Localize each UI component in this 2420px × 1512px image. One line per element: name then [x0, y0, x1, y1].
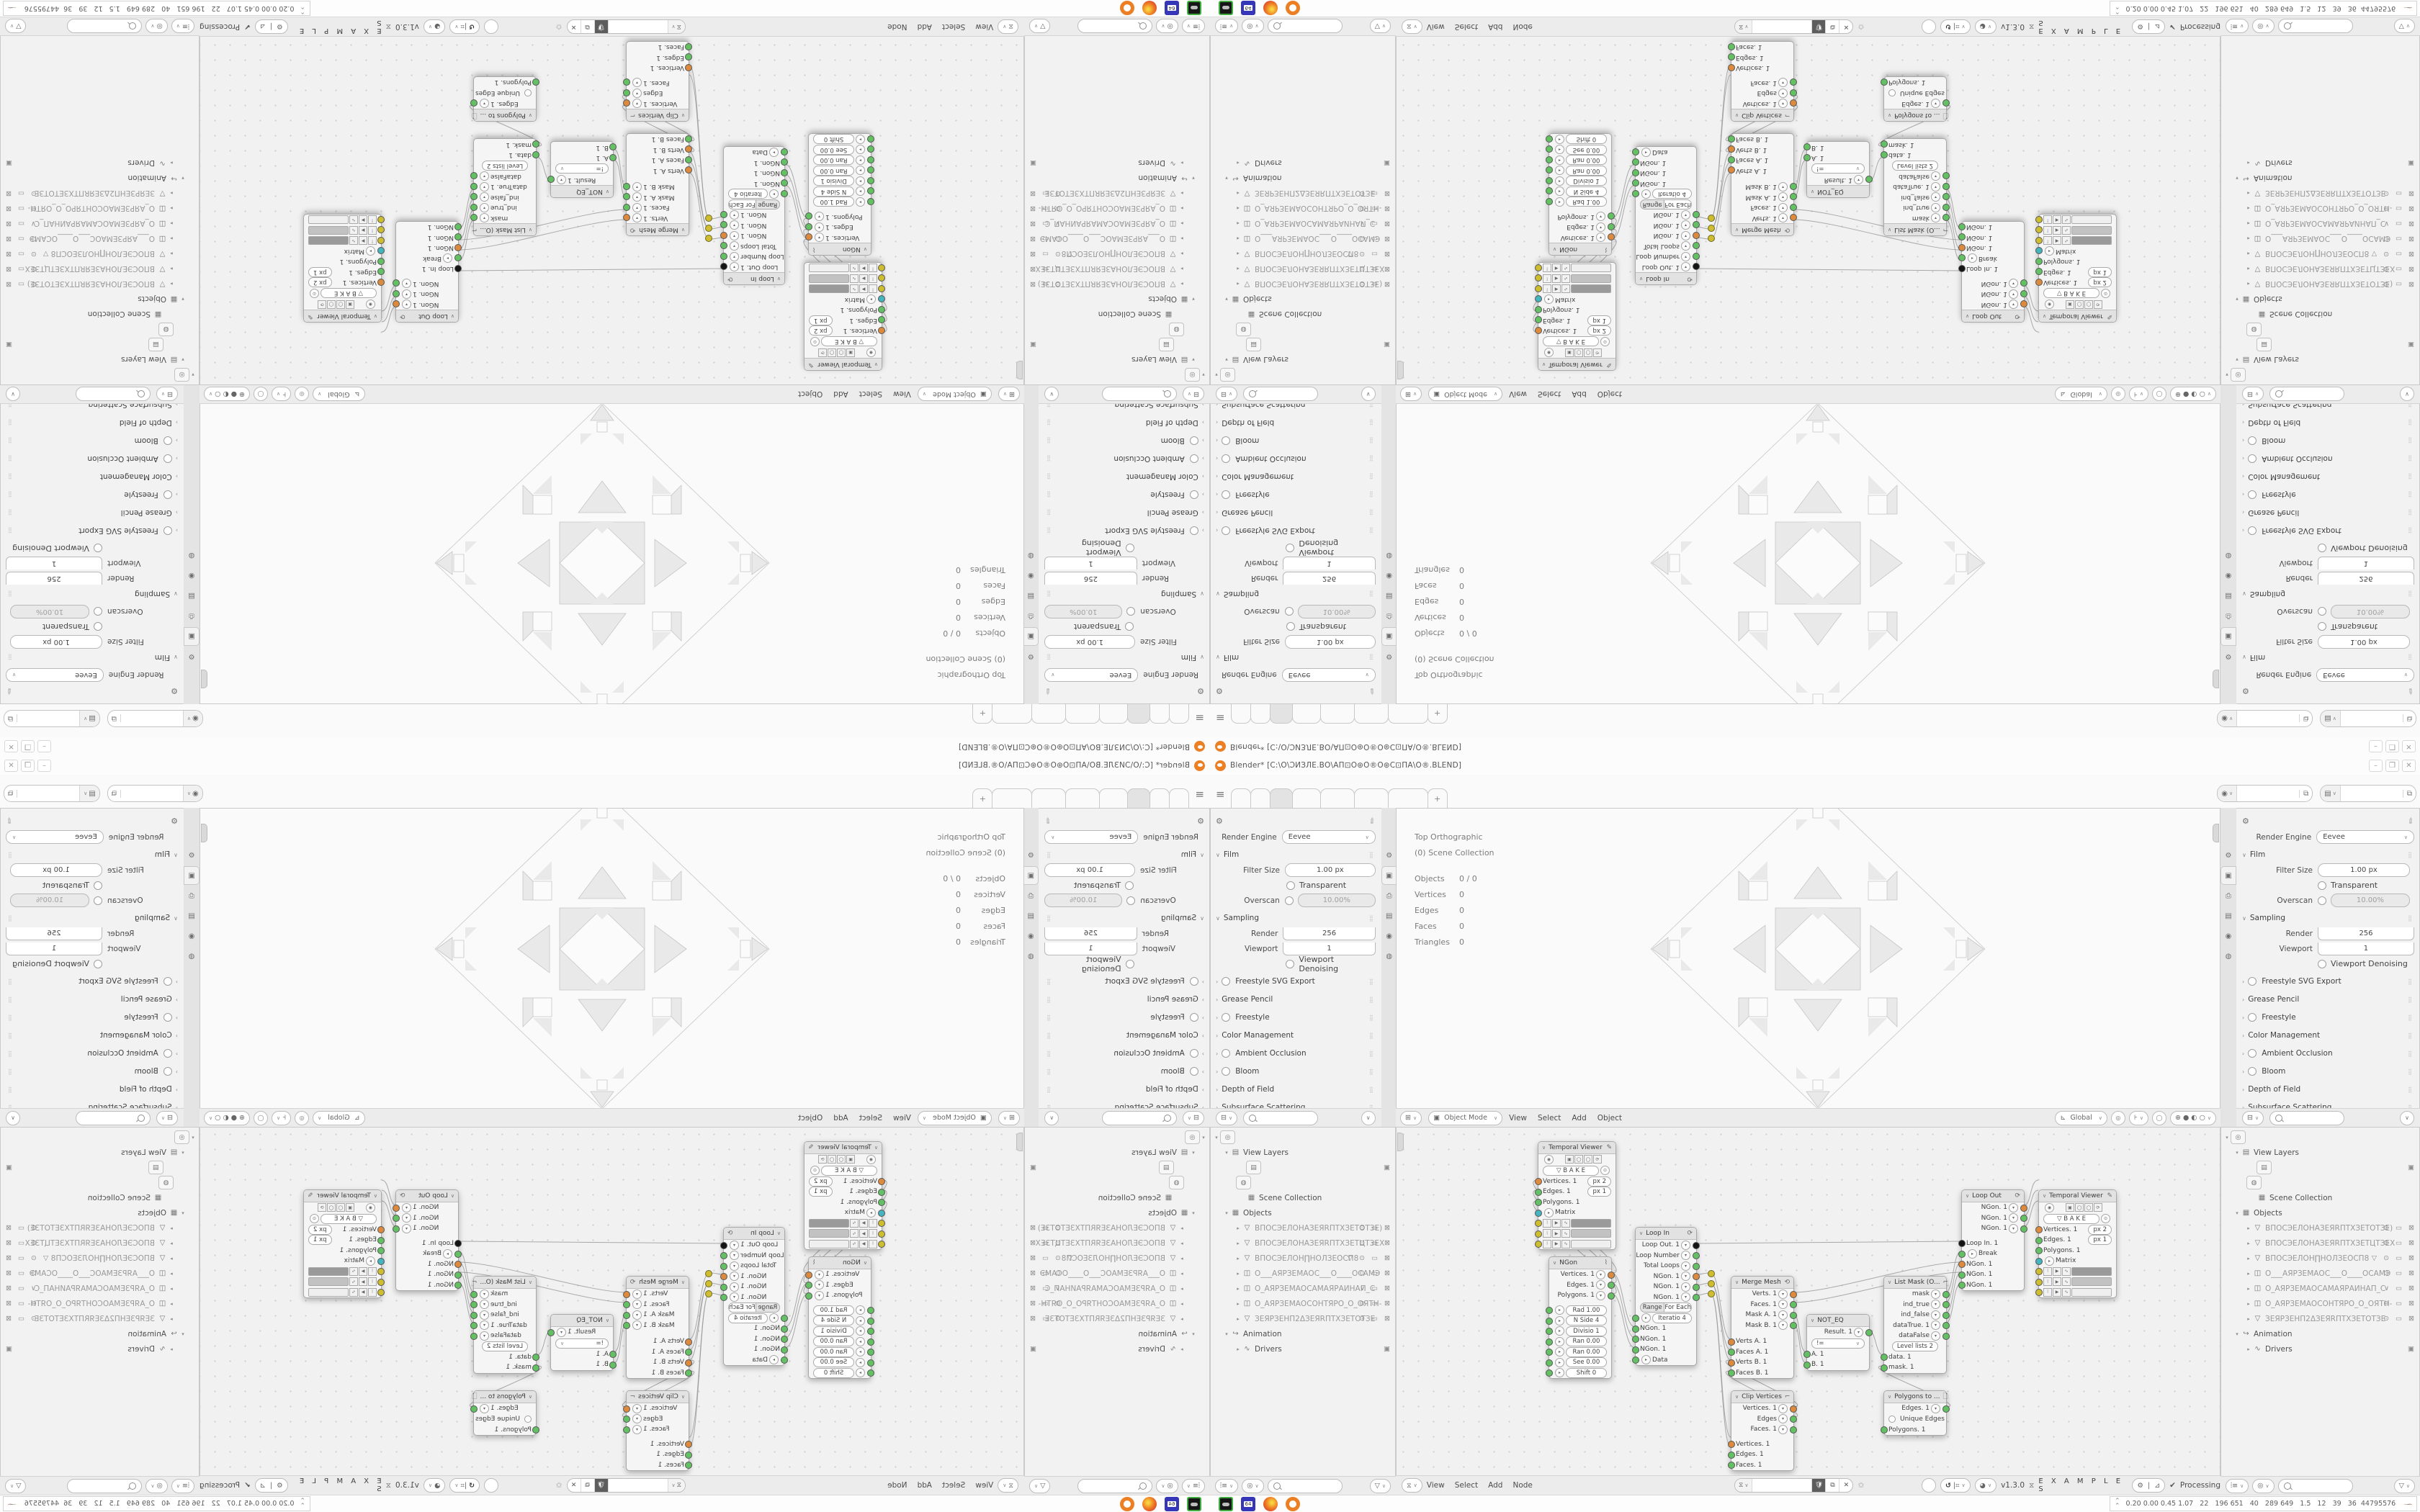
fake-user-shield-button[interactable]: 🛡 [1811, 1479, 1825, 1492]
socket-green[interactable] [1608, 1292, 1615, 1300]
socket-green[interactable] [781, 148, 788, 156]
editor-type-button[interactable]: ⊞ ∨ [998, 1111, 1020, 1125]
socket-yellow[interactable] [2035, 226, 2043, 233]
filter-size-field[interactable]: 1.00 px [1285, 635, 1376, 649]
world-icon[interactable]: ◍ [2221, 948, 2236, 965]
properties-filter-button[interactable]: ⊟ ∨ [2242, 387, 2264, 402]
socket-green[interactable] [1632, 179, 1639, 186]
socket-orange[interactable] [685, 1338, 692, 1346]
outliner-row-ВПОСЭЕЛОНАЗЕ[interactable]: ▸▽ВПОСЭЕЛОНАЗЕЯRПТХЗЕТЦТЗЕХ⊙▭⊠ [1210, 1236, 1396, 1251]
socket-orange[interactable] [623, 214, 630, 221]
socket-green[interactable] [1693, 1252, 1700, 1259]
display-mode-button[interactable]: ⦙≡ ∨ [1182, 19, 1205, 34]
socket-green[interactable] [805, 223, 812, 230]
render-toggle-icon[interactable]: ⊠ [1030, 220, 1036, 228]
outliner-search[interactable] [67, 19, 142, 34]
properties-search[interactable] [76, 387, 151, 402]
render-toggle-icon[interactable]: ⊠ [1384, 1284, 1390, 1292]
render-toggle-icon[interactable]: ⊠ [1030, 1284, 1036, 1292]
viewlayer-icon[interactable]: ▤ [1023, 588, 1038, 605]
workspace-tab-4[interactable] [1099, 704, 1128, 724]
outliner-row[interactable]: ▤▣ [0, 1160, 200, 1175]
samples-render-field[interactable]: 256 [6, 572, 102, 585]
scene-icon[interactable]: ◉ [1382, 567, 1397, 585]
render-toggle-icon[interactable]: ⊠ [1384, 250, 1390, 258]
render-toggle-icon[interactable]: ⊠ [2408, 1300, 2414, 1308]
close-button[interactable]: ✕ [4, 741, 18, 753]
socket-green[interactable] [1865, 1329, 1873, 1336]
monitor-icon[interactable]: ▭ [18, 220, 24, 228]
monitor-icon[interactable]: ▭ [1371, 220, 1378, 228]
render-toggle-icon[interactable]: ⊠ [1384, 1239, 1390, 1247]
node-loop-in[interactable]: ∨Loop In⟳Loop Out. 1▾Loop Number▾Total L… [723, 146, 785, 285]
editor-type-button[interactable]: ⊞ ∨ [1400, 1111, 1422, 1125]
viewport-menu-view[interactable]: View [1509, 1114, 1527, 1122]
viewlayer-icon[interactable]: ▤ [1023, 907, 1038, 924]
section-color-management[interactable]: ›Color Management⣿ [1044, 469, 1204, 485]
pin-icon[interactable]: ✐ [4, 815, 14, 827]
node-menu-select[interactable]: Select [1455, 22, 1478, 31]
blank-circle-button[interactable] [1922, 19, 1936, 34]
filter-funnel-button[interactable]: ▽ ∨ [5, 1479, 26, 1493]
section-grease-pencil[interactable]: ›Grease Pencil⣿ [1216, 991, 1376, 1007]
toolbar-toggle[interactable] [1016, 361, 1023, 379]
node-loop-out[interactable]: ∨Loop Out⟳NGon. 1▾NGon. 1▾NGon. 1▾Loop I… [395, 1189, 459, 1291]
socket-orange[interactable] [1790, 1405, 1797, 1413]
socket-green[interactable] [470, 193, 478, 200]
datablock-name-input[interactable] [2237, 786, 2299, 801]
reroute-node[interactable] [705, 1270, 712, 1277]
camera-icon[interactable]: ▣ [1030, 1164, 1036, 1171]
socket-green[interactable] [1546, 1359, 1553, 1367]
section-freestyle-svg-export[interactable]: ›Freestyle SVG Export⣿ [6, 973, 178, 989]
socket-green[interactable] [878, 1189, 885, 1196]
eye-icon[interactable]: ⊙ [1359, 1315, 1365, 1323]
outliner-row-View Layers[interactable]: ▾▤View Layers [1210, 352, 1396, 367]
section-freestyle-svg-export[interactable]: ›Freestyle SVG Export⣿ [1216, 973, 1376, 989]
socket-green[interactable] [377, 268, 385, 275]
outliner-row-Objects[interactable]: ▾▦Objects [0, 1205, 200, 1220]
socket-green[interactable] [781, 1346, 788, 1354]
viewlayer-chip-icon[interactable]: ▤ [2257, 1161, 2272, 1174]
section-ambient-occlusion[interactable]: ›Ambient Occlusion⣿ [6, 1045, 178, 1061]
overscan-field[interactable]: 10.00% [10, 894, 89, 907]
section-freestyle[interactable]: ›Freestyle⣿ [6, 1009, 178, 1025]
socket-orange[interactable] [878, 1178, 885, 1185]
reroute-node[interactable] [705, 225, 712, 232]
sidebar-toggle[interactable] [2213, 670, 2219, 688]
section-freestyle[interactable]: ›Freestyle⣿ [1044, 487, 1204, 503]
section-depth-of-field[interactable]: ›Depth of Field⣿ [1216, 1081, 1376, 1097]
node-tree-selector[interactable]: ⧖ ∨ 🛡 ⧉ ✕ [1734, 19, 1853, 34]
section-sampling[interactable]: ∨Sampling⣿ [1216, 586, 1376, 602]
monitor-icon[interactable]: ▭ [1042, 280, 1049, 288]
search-input[interactable] [1283, 22, 1337, 31]
floppy-64-app-icon[interactable] [1165, 1497, 1179, 1511]
socket-orange[interactable] [1728, 145, 1735, 153]
viewport-denoising-checkbox[interactable] [1286, 960, 1294, 968]
workspace-tab-6[interactable] [1031, 704, 1066, 724]
render-engine-select[interactable]: Eevee∨ [1282, 830, 1376, 844]
node-ngon[interactable]: ∨NGon⌇Vertices. 1▾Edges. 1▾Polygons. 1▾▸… [1549, 133, 1612, 256]
display-mode-button[interactable]: ⦙≡ ∨ [171, 1479, 194, 1493]
copy-datablock-button[interactable]: ⧉ [581, 1479, 595, 1492]
eye-icon[interactable]: ⊙ [2383, 204, 2389, 212]
section-depth-of-field[interactable]: ›Depth of Field⣿ [1044, 415, 1204, 431]
pin-icon[interactable]: ✐ [1366, 815, 1377, 827]
filter-person-button[interactable]: ◎ ∨ [1242, 1479, 1263, 1493]
camera-icon[interactable]: ▣ [2408, 1164, 2414, 1171]
editor-type-button[interactable]: ⧖ ∨ [1402, 19, 1422, 34]
viewport-menu-add[interactable]: Add [1572, 1114, 1586, 1122]
section-ambient-occlusion[interactable]: ›Ambient Occlusion⣿ [1044, 1045, 1204, 1061]
outliner-search[interactable] [2278, 19, 2353, 34]
overscan-checkbox[interactable] [2318, 608, 2326, 616]
node-ngon[interactable]: ∨NGon⌇Vertices. 1▾Edges. 1▾Polygons. 1▾▸… [1549, 1256, 1612, 1379]
socket-green[interactable] [1693, 221, 1700, 228]
filter-funnel-button[interactable]: ▽ ∨ [2394, 1479, 2415, 1493]
socket-green[interactable] [1535, 316, 1542, 323]
output-icon[interactable]: ⎙ [1023, 887, 1038, 904]
socket-green[interactable] [805, 212, 812, 220]
node-not-eq[interactable]: ∨NOT_EQResult. 1▾!=∨A. 1B. 1 [550, 1314, 614, 1371]
render-icon[interactable]: ▣ [2221, 628, 2236, 645]
node-ngon[interactable]: ∨NGon⌇Vertices. 1▾Edges. 1▾Polygons. 1▾▸… [808, 133, 871, 256]
overscan-checkbox[interactable] [94, 896, 102, 905]
outliner-row-О___АЯРЗЕМАО[interactable]: ▸◫О___АЯРЗЕМАОС___О____ОСАМЭ⊙▭⊠ [0, 231, 200, 246]
socket-orange[interactable] [2020, 1205, 2027, 1212]
world-icon[interactable]: ◍ [1382, 547, 1397, 564]
samples-render-field[interactable]: 256 [6, 927, 102, 940]
viewport-menu-object[interactable]: Object [798, 1114, 823, 1122]
workspace-tab-7[interactable] [1388, 788, 1428, 808]
monitor-icon[interactable]: ▭ [2396, 1224, 2402, 1232]
section-color-management[interactable]: ›Color Management⣿ [1216, 469, 1376, 485]
socket-green[interactable] [1546, 166, 1553, 174]
outliner-row-ВПОСЭЕЛОНАЗЕ[interactable]: ▸▽ВПОСЭЕЛОНАЗЕЯRПТХЗЕТОТЗЕ)⊙▭⊠ [1210, 276, 1396, 292]
section-bloom[interactable]: ›Bloom⣿ [1216, 433, 1376, 449]
socket-green[interactable] [1803, 1362, 1811, 1369]
outliner-row-ВПОСЭЕЛОНАЗЕ[interactable]: ▸▽ВПОСЭЕЛОНАЗЕЯRПТХЗЕТЦТЗЕХ⊙▭⊠ [1210, 261, 1396, 276]
monitor-icon[interactable]: ▭ [1042, 1284, 1049, 1292]
workspace-tab-3[interactable] [1127, 704, 1150, 724]
outliner-row-Scene Collec[interactable]: ▦Scene Collection [1024, 1190, 1210, 1205]
socket-orange[interactable] [805, 233, 812, 240]
socket-green[interactable] [623, 1426, 630, 1434]
monitor-icon[interactable]: ▭ [2396, 1315, 2402, 1323]
socket-green[interactable] [1942, 1405, 1950, 1413]
socket-green[interactable] [1728, 1452, 1735, 1459]
eye-icon[interactable]: ⊙ [31, 1300, 37, 1308]
outliner-row-ВПОСЭЕЛОНАЗЕ[interactable]: ▸▽ВПОСЭЕЛОНАЗЕЯRПТХЗЕТЦТЗЕХ⊙▭⊠ [2220, 261, 2420, 276]
filter-size-field[interactable]: 1.00 px [10, 635, 102, 649]
socket-teal[interactable] [377, 247, 385, 254]
socket-black[interactable] [1693, 1242, 1700, 1249]
transparent-checkbox[interactable] [1286, 623, 1295, 631]
socket-green[interactable] [1958, 1251, 1966, 1258]
workspace-tab-5[interactable] [1320, 788, 1355, 808]
section-ambient-occlusion[interactable]: ›Ambient Occlusion⣿ [6, 451, 178, 467]
socket-green[interactable] [867, 1318, 874, 1325]
overscan-checkbox[interactable] [1285, 608, 1294, 616]
section-film[interactable]: ∨Film⣿ [1216, 649, 1376, 665]
socket-green[interactable] [470, 1312, 478, 1319]
properties-search[interactable] [1102, 387, 1177, 402]
reroute-node[interactable] [705, 1280, 712, 1287]
socket-yellow[interactable] [377, 226, 385, 233]
node-loop-in[interactable]: ∨Loop In⟳Loop Out. 1▾Loop Number▾Total L… [1635, 146, 1697, 285]
node-loop-out[interactable]: ∨Loop Out⟳NGon. 1▾NGon. 1▾NGon. 1▾Loop I… [1961, 1189, 2025, 1291]
section-color-management[interactable]: ›Color Management⣿ [1044, 1027, 1204, 1043]
filter-chip-icon[interactable]: ◎ [1220, 1130, 1235, 1144]
blank-circle-button[interactable] [484, 19, 498, 34]
socket-orange[interactable] [2020, 300, 2027, 307]
overlay-dropdown[interactable]: ◕ ∨ [423, 19, 445, 34]
scene-icon[interactable]: ◉ [2221, 567, 2236, 585]
copy-datablock-button[interactable]: ⧉ [1825, 1479, 1839, 1492]
pivot-button[interactable]: ◯ [2152, 387, 2166, 402]
node-menu-view[interactable]: View [1427, 1481, 1445, 1490]
world-chip-icon[interactable]: ◍ [1169, 323, 1184, 336]
socket-green[interactable] [454, 233, 462, 240]
socket-green[interactable] [532, 140, 539, 148]
workspace-tab-6[interactable] [1354, 788, 1389, 808]
eye-icon[interactable]: ⊙ [1055, 1224, 1061, 1232]
outliner-row-О___АЯРЗЕМАО[interactable]: ▸◫О___АЯРЗЕМАОС___О____ОСАМЭ⊙▭⊠ [0, 1266, 200, 1281]
socket-orange[interactable] [1790, 1291, 1797, 1298]
menu-hamburger-icon[interactable]: ≡ [1195, 788, 1204, 801]
socket-black[interactable] [1693, 263, 1700, 270]
funnel-icon[interactable]: ▽ [1348, 1254, 1353, 1262]
overscan-checkbox[interactable] [94, 608, 102, 616]
reroute-node[interactable] [1708, 1270, 1715, 1277]
socket-orange[interactable] [2035, 279, 2043, 286]
socket-orange[interactable] [1728, 64, 1735, 71]
samples-viewport-field[interactable]: 1 [1283, 942, 1375, 955]
socket-green[interactable] [1803, 154, 1811, 161]
pin-icon[interactable]: ✩ [556, 22, 563, 31]
workspace-tab-7[interactable] [992, 788, 1032, 808]
socket-yellow[interactable] [878, 1241, 885, 1248]
section-grease-pencil[interactable]: ›Grease Pencil⣿ [1044, 991, 1204, 1007]
render-toggle-icon[interactable]: ⊠ [1384, 1224, 1390, 1232]
node-temporal-viewer-right[interactable]: ∨Temporal Viewer✎◉▣◯◯⟳▽ B A K E⊙Vertices… [303, 214, 382, 323]
render-toggle-icon[interactable]: ⊠ [1030, 1300, 1036, 1308]
properties-options-button[interactable]: ∨ [1044, 1111, 1059, 1125]
socket-green[interactable] [685, 53, 692, 60]
transparent-checkbox[interactable] [94, 623, 102, 631]
copy-icon[interactable]: ⧉ [4, 790, 17, 798]
eye-icon[interactable]: ⊙ [31, 265, 37, 273]
outliner-row[interactable]: ▤▣ [0, 337, 200, 352]
pin-icon[interactable]: ✐ [2406, 815, 2416, 827]
world-chip-icon[interactable]: ◍ [1236, 1176, 1251, 1189]
socket-green[interactable] [547, 1329, 555, 1336]
reroute-node[interactable] [1708, 235, 1715, 242]
monitor-icon[interactable]: ▭ [18, 280, 24, 288]
section-bloom[interactable]: ›Bloom⣿ [1216, 1063, 1376, 1079]
socket-green[interactable] [2035, 258, 2043, 265]
node-tree-selector[interactable]: ⧖ ∨ 🛡 ⧉ ✕ [1734, 1478, 1853, 1493]
editor-type-button[interactable]: ⊞ ∨ [998, 387, 1020, 402]
editor-type-button[interactable]: ⊞ ∨ [1400, 387, 1422, 402]
socket-green[interactable] [1546, 1369, 1553, 1377]
monitor-icon[interactable]: ▭ [18, 265, 24, 273]
eye-icon[interactable]: ⊙ [1359, 189, 1365, 197]
render-toggle-icon[interactable]: ⊠ [6, 1300, 12, 1308]
workspace-tab-3[interactable] [1270, 788, 1293, 808]
properties-filter-button[interactable]: ⊟ ∨ [1216, 1111, 1237, 1125]
samples-viewport-field[interactable]: 1 [1044, 557, 1137, 570]
section-grease-pencil[interactable]: ›Grease Pencil⣿ [1216, 505, 1376, 521]
viewport-denoising-checkbox[interactable] [2318, 960, 2326, 968]
scene-icon[interactable]: ◉ [1382, 927, 1397, 945]
render-toggle-icon[interactable]: ⊠ [2408, 265, 2414, 273]
outliner-row-View Layers[interactable]: ▾▤View Layers [2220, 1145, 2420, 1160]
render-icon[interactable]: ▣ [184, 867, 199, 884]
shading-mode-buttons[interactable]: ⊕ ● ◐ ○ ∨ [2170, 387, 2216, 402]
scene-icon[interactable]: ◉ [1023, 927, 1038, 945]
socket-teal[interactable] [1535, 295, 1542, 302]
section-depth-of-field[interactable]: ›Depth of Field⣿ [2242, 1081, 2414, 1097]
outliner-row-ВПОСЭЕЛОН∏НО[interactable]: ▸▽ВПОСЭЕЛОН∏НОЛЗЕОСП8▽⊙▭⊠ [0, 246, 200, 261]
workspace-tab-6[interactable] [1354, 704, 1389, 724]
socket-green[interactable] [1546, 177, 1553, 184]
render-toggle-icon[interactable]: ⊠ [6, 1269, 12, 1277]
socket-green[interactable] [1958, 1272, 1966, 1279]
copy-icon[interactable]: ⧉ [108, 715, 121, 723]
outliner-search[interactable] [2278, 1479, 2353, 1493]
socket-green[interactable] [1546, 156, 1553, 163]
floppy-64-app-icon[interactable] [1165, 1, 1179, 15]
eye-icon[interactable]: ⊙ [1055, 1254, 1061, 1262]
socket-yellow[interactable] [377, 1289, 385, 1296]
viewport-menu-view[interactable]: View [893, 390, 911, 399]
filter-person-button[interactable]: ◎ ∨ [2252, 19, 2274, 34]
eye-icon[interactable]: ⊙ [1055, 204, 1061, 212]
overscan-field[interactable]: 10.00% [10, 605, 89, 618]
eye-icon[interactable]: ⊙ [31, 280, 37, 288]
reroute-node[interactable] [705, 215, 712, 222]
filter-funnel-button[interactable]: ▽ ∨ [1370, 19, 1391, 34]
socket-green[interactable] [720, 211, 727, 218]
render-toggle-icon[interactable]: ⊠ [1030, 189, 1036, 197]
socket-green[interactable] [805, 1282, 812, 1289]
outliner-row[interactable]: ▾◎ [2220, 1130, 2420, 1145]
overscan-field[interactable]: 10.00% [1298, 605, 1376, 618]
socket-orange[interactable] [1958, 244, 1966, 251]
render-engine-select[interactable]: Eevee∨ [6, 830, 104, 844]
snap-button[interactable]: ⊦ ∨ [272, 1111, 291, 1125]
eye-icon[interactable]: ⊙ [1359, 280, 1365, 288]
render-toggle-icon[interactable]: ⊠ [1030, 1239, 1036, 1247]
terminal-app-icon[interactable] [1187, 1, 1201, 15]
render-toggle-icon[interactable]: ⊠ [6, 1224, 12, 1232]
socket-orange[interactable] [1535, 1178, 1542, 1185]
samples-render-field[interactable]: 256 [1044, 927, 1137, 940]
socket-green[interactable] [867, 156, 874, 163]
socket-orange[interactable] [805, 1272, 812, 1279]
monitor-icon[interactable]: ▭ [2396, 204, 2402, 212]
filter-chip-icon[interactable]: ◎ [174, 1130, 189, 1144]
chevron-icon[interactable]: ∨ [1055, 220, 1060, 228]
outliner-row-О___АЯРЗЕМАО[interactable]: ▸◫О___АЯРЗЕМАОС___О____ОСАМЭ⊙▭⊠ [1210, 1266, 1396, 1281]
copy-icon[interactable]: ⧉ [4, 715, 17, 723]
node-list-mask[interactable]: ∨List Mask (O...⌐mask▾ind_true▾ind_false… [1883, 139, 1947, 237]
socket-teal[interactable] [878, 1210, 885, 1217]
section-bloom[interactable]: ›Bloom⣿ [2242, 433, 2414, 449]
socket-green[interactable] [1942, 204, 1950, 211]
socket-green[interactable] [1546, 1349, 1553, 1356]
monitor-icon[interactable]: ▭ [2396, 235, 2402, 243]
node-clip-vertices[interactable]: ∨Clip Vertices⌐Vertices. 1▾Edges▾Faces. … [1731, 41, 1794, 122]
socket-green[interactable] [623, 1322, 630, 1329]
filter-size-field[interactable]: 1.00 px [1285, 863, 1376, 877]
outliner-row-ЗЕЯРЗЕНП2ΔЗЕ[interactable]: ▸▽ЗЕЯРЗЕНП2ΔЗЕЯRПТХЗЕТОТЗЕ⊙▭⊠ [1024, 186, 1210, 201]
workspace-tab-6[interactable] [1031, 788, 1066, 808]
overlay-dropdown[interactable]: ◕ ∨ [1975, 1478, 1996, 1493]
render-icon[interactable]: ▣ [184, 628, 199, 645]
menu-hamburger-icon[interactable]: ≡ [1216, 788, 1225, 801]
socket-yellow[interactable] [1535, 1220, 1542, 1227]
outliner-row[interactable]: ◍ [0, 1175, 200, 1190]
section-bloom[interactable]: ›Bloom⣿ [1044, 1063, 1204, 1079]
render-toggle-icon[interactable]: ⊠ [1384, 1315, 1390, 1323]
section-ambient-occlusion[interactable]: ›Ambient Occlusion⣿ [2242, 451, 2414, 467]
geometry-node-editor[interactable]: ∨Temporal Viewer✎◉▣◯◯⟳▽ B A K E⊙Vertices… [1396, 1127, 2220, 1495]
outliner-row-Scene Collec[interactable]: ▦Scene Collection [0, 1190, 200, 1205]
section-sampling[interactable]: ∨Sampling⣿ [2242, 910, 2414, 926]
blender-app-icon[interactable] [1120, 1497, 1134, 1511]
socket-green[interactable] [867, 1338, 874, 1346]
outliner-row-ВПОСЭЕЛОНАЗЕ[interactable]: ▸▽ВПОСЭЕЛОНАЗЕЯRПТХЗЕТОТЗЕ)⊙▭⊠ [0, 1220, 200, 1236]
chevron-icon[interactable]: ∨ [1360, 1284, 1365, 1292]
eye-icon[interactable]: ⊙ [1055, 1315, 1061, 1323]
node-clip-vertices[interactable]: ∨Clip Vertices⌐Vertices. 1▾Edges▾Faces. … [626, 1390, 689, 1471]
node-menu-add[interactable]: Add [918, 1481, 932, 1490]
outliner-row[interactable]: ◍ [2220, 1175, 2420, 1190]
firefox-app-icon[interactable] [1263, 1497, 1278, 1511]
socket-teal[interactable] [2035, 247, 2043, 254]
reroute-node[interactable] [1708, 1290, 1715, 1297]
render-toggle-icon[interactable]: ⊠ [2408, 250, 2414, 258]
eye-icon[interactable]: ⊙ [1055, 1300, 1061, 1308]
section-ambient-occlusion[interactable]: ›Ambient Occlusion⣿ [1044, 451, 1204, 467]
socket-green[interactable] [1546, 1318, 1553, 1325]
monitor-icon[interactable]: ▭ [2396, 250, 2402, 258]
section-color-management[interactable]: ›Color Management⣿ [6, 469, 178, 485]
socket-orange[interactable] [878, 327, 885, 334]
node-polygons-to-edges[interactable]: ∨Polygons to ...🗋Edges. 1▾Unique EdgesPo… [473, 76, 537, 122]
copy-icon[interactable]: ⧉ [2299, 790, 2312, 798]
socket-yellow[interactable] [1535, 285, 1542, 292]
datablock-name-input[interactable] [17, 786, 79, 801]
outliner-row-Drivers[interactable]: ▸∿Drivers▣ [1024, 1341, 1210, 1356]
render-toggle-icon[interactable]: ⊠ [6, 1254, 12, 1262]
monitor-icon[interactable]: ▭ [1042, 204, 1049, 212]
viewlayer-selector[interactable]: ▤∨⧉ [4, 710, 100, 727]
outliner-row-View Layers[interactable]: ▾▤View Layers [1024, 1145, 1210, 1160]
outliner-row-ВПОСЭЕЛОНАЗЕ[interactable]: ▸▽ВПОСЭЕЛОНАЗЕЯRПТХЗЕТЦТЗЕХ⊙▭⊠ [1024, 261, 1210, 276]
pin-icon[interactable]: ✐ [1042, 685, 1053, 697]
socket-green[interactable] [1632, 1356, 1639, 1364]
monitor-icon[interactable]: ▭ [2396, 1284, 2402, 1292]
socket-orange[interactable] [377, 1226, 385, 1233]
socket-orange[interactable] [623, 99, 630, 107]
socket-green[interactable] [470, 183, 478, 190]
eye-icon[interactable]: ⊙ [2383, 189, 2389, 197]
display-mode-button[interactable]: ⦙≡ ∨ [1182, 1479, 1205, 1493]
